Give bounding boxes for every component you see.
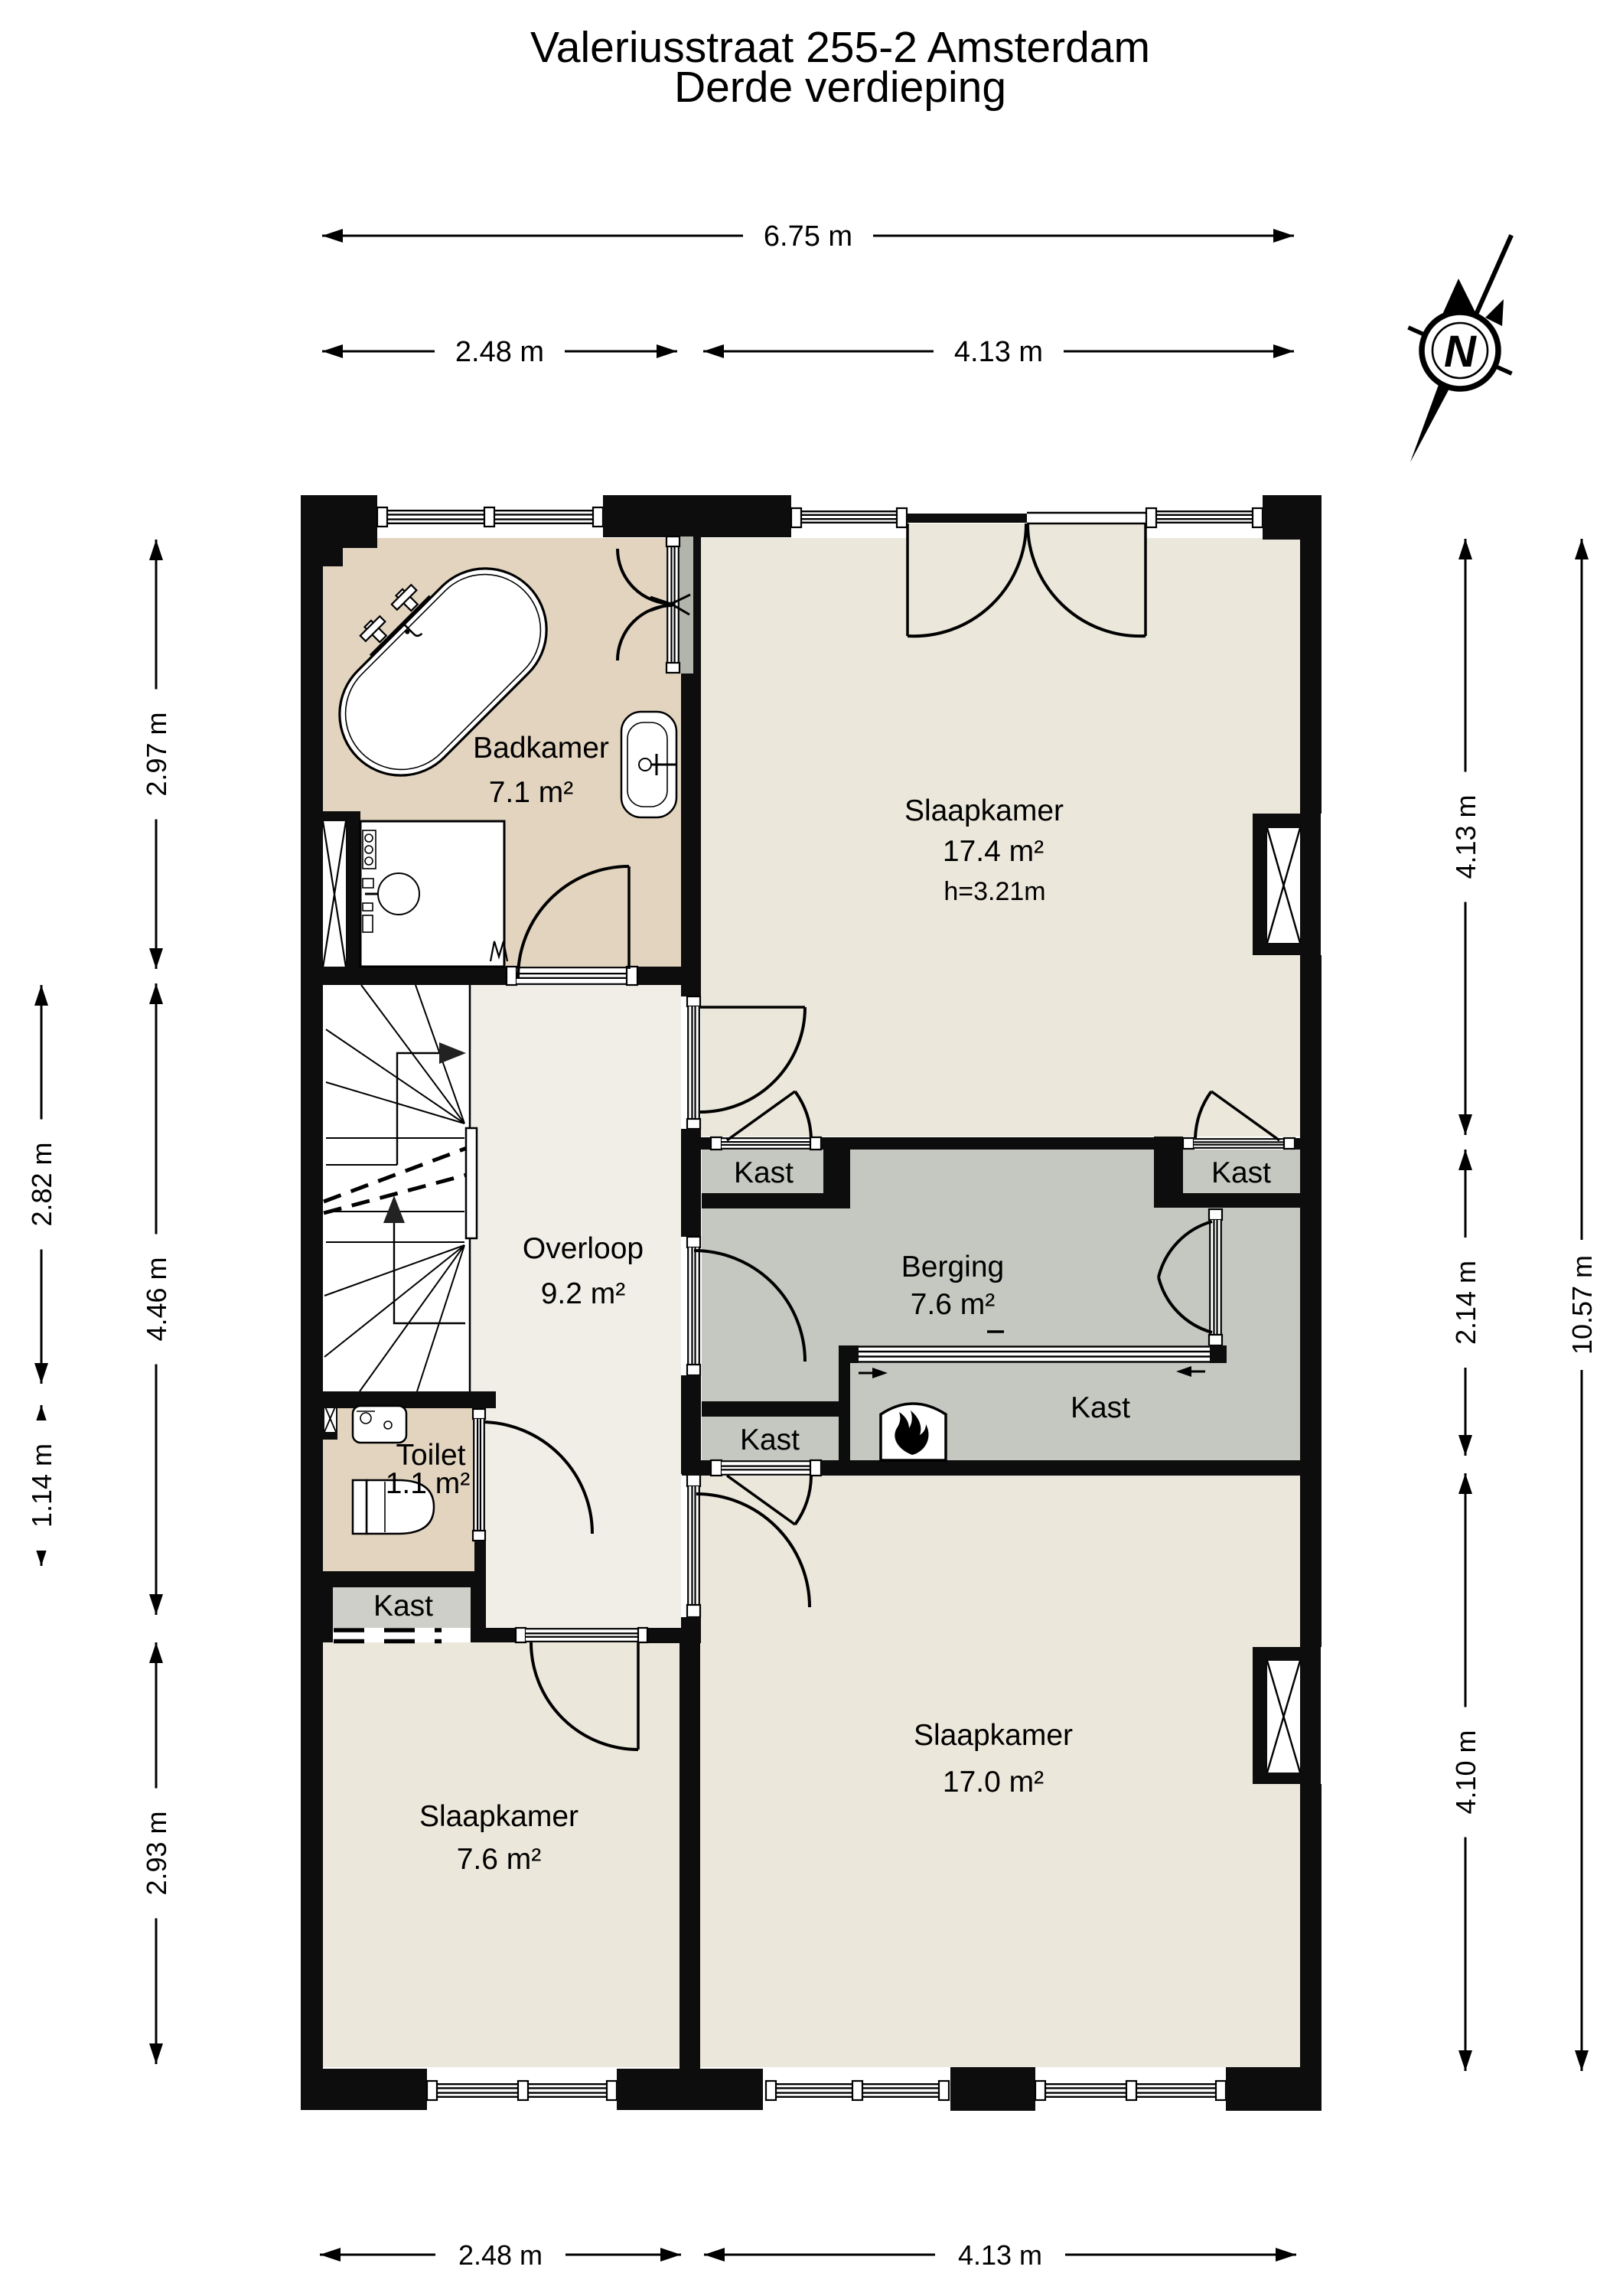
svg-text:Kast: Kast — [1071, 1391, 1130, 1424]
svg-text:4.46 m: 4.46 m — [141, 1257, 172, 1341]
svg-text:h=3.21m: h=3.21m — [943, 877, 1045, 906]
svg-text:Slaapkamer: Slaapkamer — [419, 1800, 578, 1833]
svg-text:Slaapkamer: Slaapkamer — [904, 794, 1064, 827]
svg-text:2.48 m: 2.48 m — [458, 2239, 543, 2271]
svg-text:2.14 m: 2.14 m — [1450, 1261, 1481, 1345]
svg-text:7.6 m²: 7.6 m² — [911, 1288, 996, 1321]
svg-text:Badkamer: Badkamer — [473, 732, 609, 765]
svg-text:Kast: Kast — [373, 1590, 433, 1623]
svg-text:2.97 m: 2.97 m — [141, 712, 172, 796]
svg-text:9.2 m²: 9.2 m² — [541, 1277, 626, 1310]
svg-text:7.6 m²: 7.6 m² — [457, 1843, 542, 1876]
svg-text:17.4 m²: 17.4 m² — [943, 835, 1044, 868]
svg-text:Kast: Kast — [1211, 1156, 1271, 1189]
svg-text:2.93 m: 2.93 m — [141, 1811, 172, 1895]
svg-text:17.0 m²: 17.0 m² — [943, 1766, 1044, 1799]
svg-text:1.14 m: 1.14 m — [26, 1443, 57, 1528]
svg-text:Overloop: Overloop — [523, 1232, 644, 1265]
svg-text:10.57 m: 10.57 m — [1566, 1255, 1598, 1355]
svg-text:Kast: Kast — [740, 1424, 800, 1456]
svg-text:N: N — [1444, 327, 1477, 377]
svg-text:4.13 m: 4.13 m — [954, 336, 1043, 368]
svg-text:4.13 m: 4.13 m — [1450, 794, 1481, 879]
svg-text:Slaapkamer: Slaapkamer — [914, 1719, 1073, 1752]
svg-text:4.13 m: 4.13 m — [958, 2239, 1042, 2271]
svg-text:Berging: Berging — [901, 1251, 1004, 1283]
svg-text:Derde verdieping: Derde verdieping — [674, 63, 1006, 112]
svg-text:2.82 m: 2.82 m — [26, 1142, 57, 1226]
svg-text:2.48 m: 2.48 m — [455, 336, 544, 368]
svg-text:Kast: Kast — [734, 1156, 794, 1189]
svg-text:6.75 m: 6.75 m — [764, 220, 852, 253]
svg-text:7.1 m²: 7.1 m² — [489, 776, 574, 809]
svg-text:1.1 m²: 1.1 m² — [386, 1467, 471, 1500]
svg-text:4.10 m: 4.10 m — [1450, 1730, 1481, 1814]
